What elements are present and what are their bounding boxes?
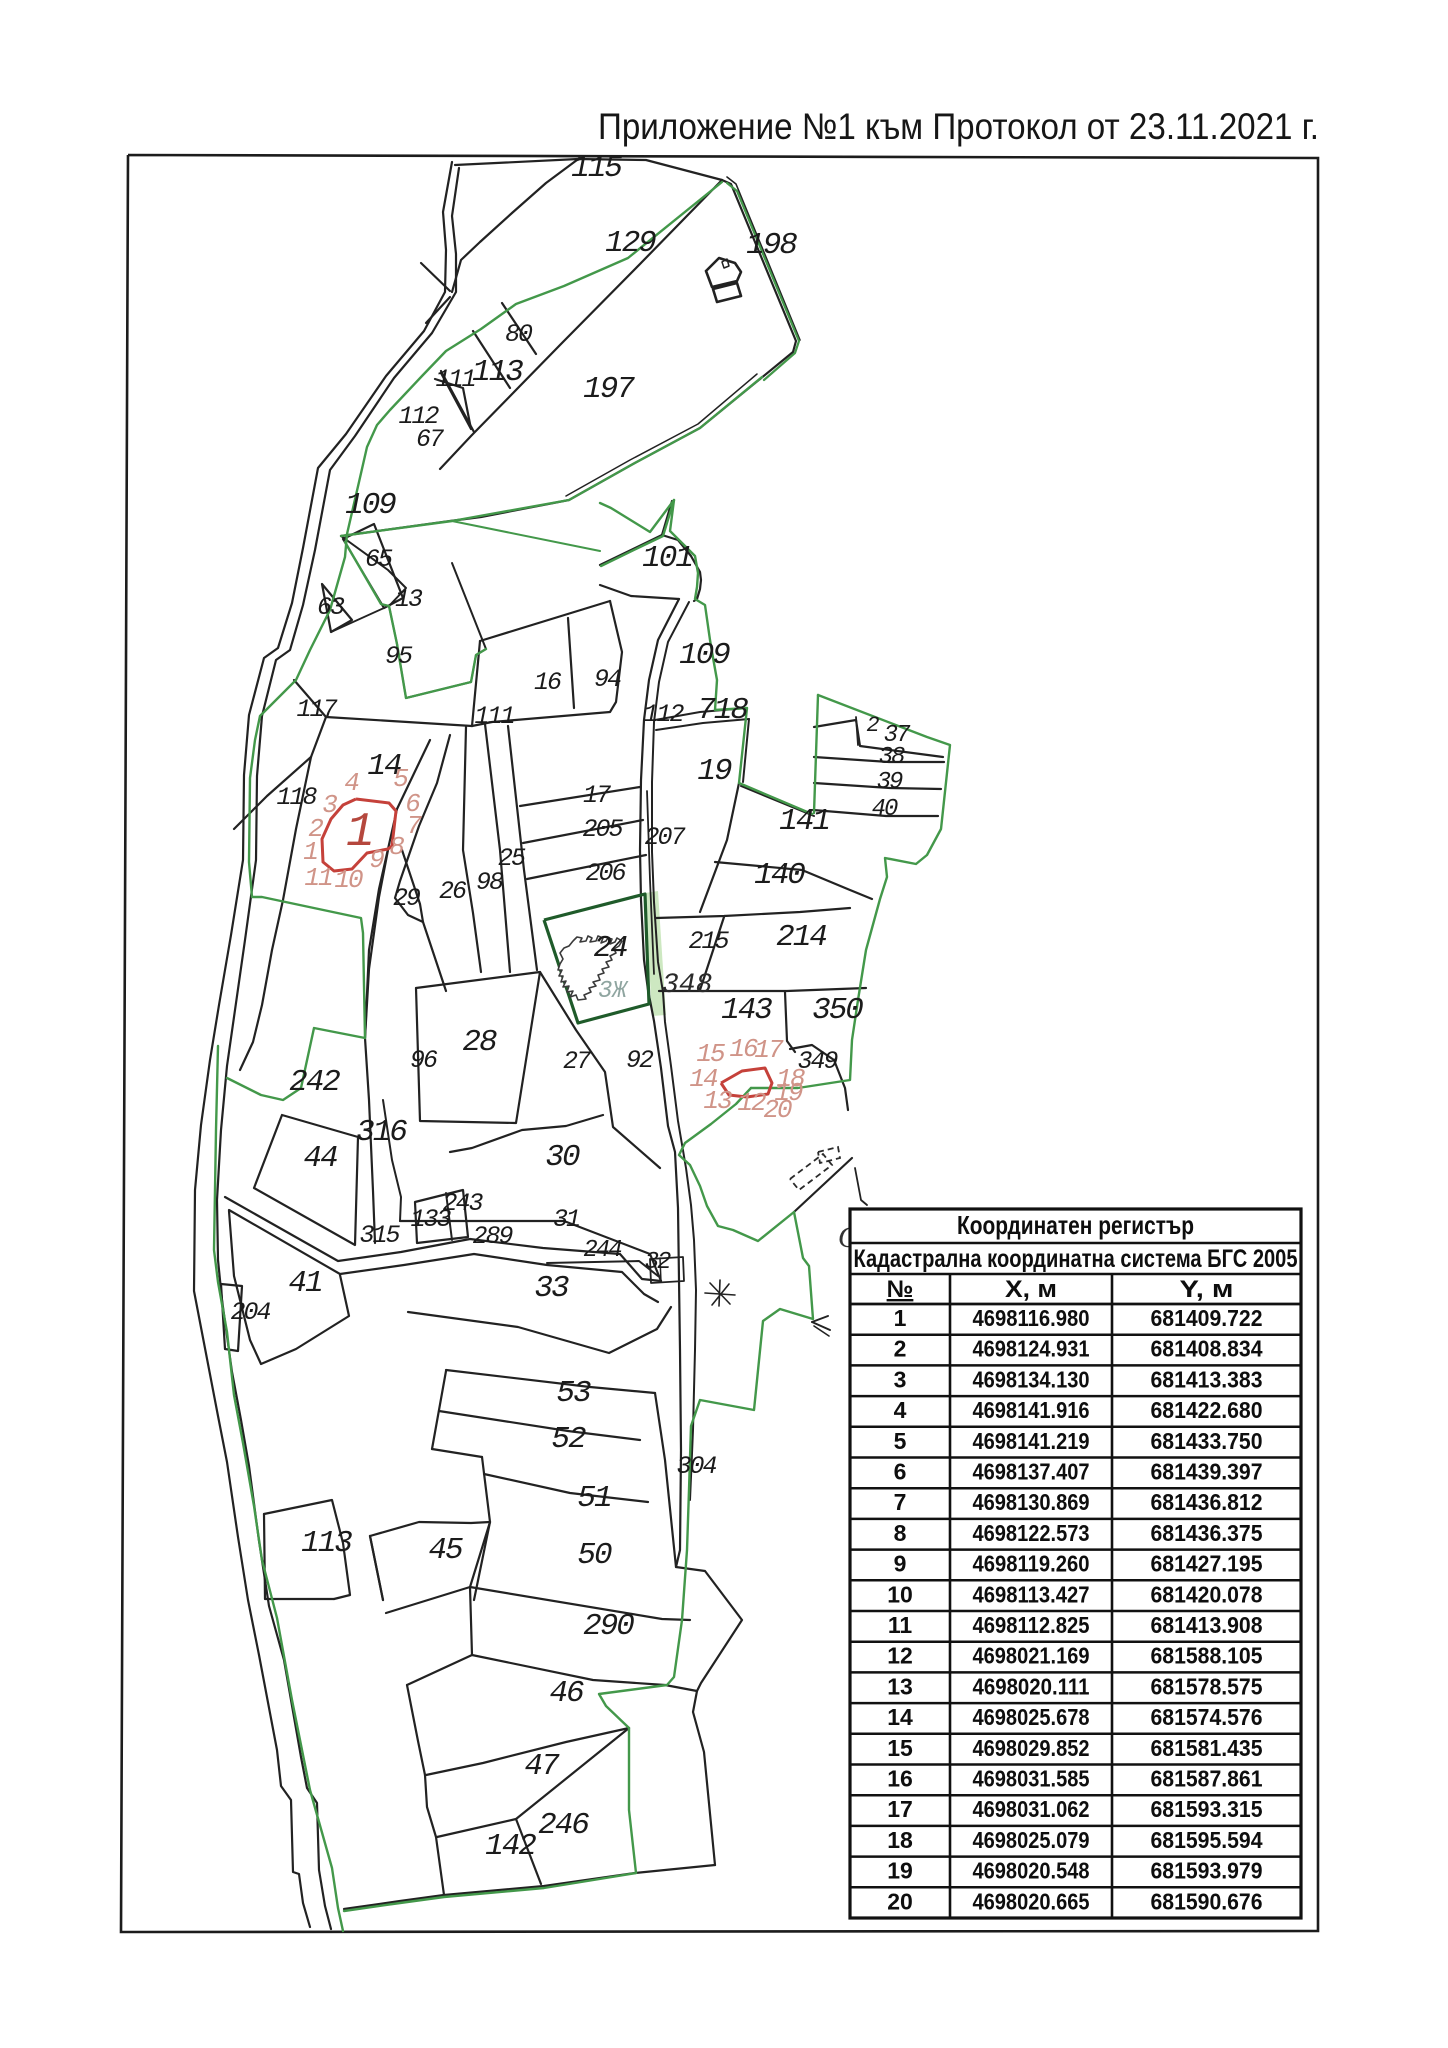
svg-text:4698031.062: 4698031.062 xyxy=(973,1796,1090,1822)
svg-text:348: 348 xyxy=(662,970,712,1001)
svg-text:7: 7 xyxy=(894,1489,907,1515)
svg-text:206: 206 xyxy=(585,859,626,888)
svg-text:13: 13 xyxy=(703,1086,732,1116)
svg-text:5: 5 xyxy=(894,1428,907,1454)
svg-text:681436.812: 681436.812 xyxy=(1151,1489,1263,1515)
svg-text:6: 6 xyxy=(894,1459,907,1485)
svg-text:38: 38 xyxy=(879,744,905,771)
svg-text:17: 17 xyxy=(583,781,611,810)
svg-text:304: 304 xyxy=(676,1452,716,1481)
svg-text:4698122.573: 4698122.573 xyxy=(973,1520,1090,1546)
svg-text:33: 33 xyxy=(534,1271,569,1306)
svg-text:15: 15 xyxy=(887,1735,913,1761)
svg-text:1: 1 xyxy=(894,1305,907,1331)
svg-text:4698031.585: 4698031.585 xyxy=(973,1766,1090,1792)
svg-text:681427.195: 681427.195 xyxy=(1151,1551,1263,1577)
svg-text:Y, м: Y, м xyxy=(1180,1276,1234,1303)
svg-text:16: 16 xyxy=(534,668,562,697)
svg-text:3: 3 xyxy=(322,790,337,820)
svg-text:197: 197 xyxy=(583,372,635,407)
svg-text:205: 205 xyxy=(582,815,623,844)
svg-text:112: 112 xyxy=(643,700,684,729)
svg-text:52: 52 xyxy=(551,1422,586,1457)
svg-text:133: 133 xyxy=(410,1205,451,1234)
svg-text:140: 140 xyxy=(754,858,805,893)
svg-text:94: 94 xyxy=(594,665,621,694)
svg-text:4698134.130: 4698134.130 xyxy=(973,1366,1090,1392)
svg-text:11: 11 xyxy=(888,1612,913,1638)
svg-text:26: 26 xyxy=(439,877,467,906)
svg-text:681590.676: 681590.676 xyxy=(1151,1888,1263,1914)
svg-text:289: 289 xyxy=(472,1222,512,1251)
svg-text:681593.979: 681593.979 xyxy=(1151,1858,1263,1884)
svg-text:4698130.869: 4698130.869 xyxy=(973,1489,1090,1515)
svg-text:46: 46 xyxy=(549,1676,584,1711)
svg-text:4698141.916: 4698141.916 xyxy=(973,1397,1090,1423)
svg-text:681409.722: 681409.722 xyxy=(1151,1305,1263,1331)
svg-text:3: 3 xyxy=(894,1366,907,1392)
svg-text:113: 113 xyxy=(472,355,523,390)
svg-text:129: 129 xyxy=(605,226,656,261)
svg-text:215: 215 xyxy=(688,927,729,956)
svg-text:4698141.219: 4698141.219 xyxy=(973,1428,1090,1454)
svg-text:204: 204 xyxy=(230,1298,270,1327)
svg-text:9: 9 xyxy=(894,1551,907,1577)
svg-text:Координатен регистър: Координатен регистър xyxy=(957,1210,1194,1240)
svg-text:4698025.678: 4698025.678 xyxy=(973,1704,1090,1730)
svg-text:681595.594: 681595.594 xyxy=(1151,1827,1263,1853)
svg-text:95: 95 xyxy=(385,642,413,671)
svg-text:Х, м: Х, м xyxy=(1005,1276,1057,1303)
svg-text:681413.383: 681413.383 xyxy=(1151,1366,1263,1392)
svg-text:681422.680: 681422.680 xyxy=(1151,1397,1263,1423)
svg-text:12: 12 xyxy=(737,1088,766,1118)
svg-text:25: 25 xyxy=(498,844,526,873)
svg-text:718: 718 xyxy=(697,693,748,728)
svg-text:290: 290 xyxy=(583,1609,634,1644)
svg-text:141: 141 xyxy=(779,804,829,839)
svg-text:67: 67 xyxy=(416,425,444,454)
svg-text:13: 13 xyxy=(887,1673,913,1699)
svg-text:117: 117 xyxy=(296,695,337,724)
svg-text:30: 30 xyxy=(545,1140,580,1175)
svg-text:4698124.931: 4698124.931 xyxy=(973,1336,1090,1362)
svg-text:681578.575: 681578.575 xyxy=(1151,1673,1263,1699)
svg-text:24: 24 xyxy=(593,931,627,966)
svg-text:111: 111 xyxy=(435,365,474,394)
svg-text:681439.397: 681439.397 xyxy=(1151,1459,1263,1485)
svg-text:Кадастрална координатна систем: Кадастрална координатна система БГС 2005 xyxy=(854,1245,1298,1273)
svg-text:16: 16 xyxy=(887,1766,913,1792)
svg-text:118: 118 xyxy=(276,783,317,812)
svg-text:14: 14 xyxy=(887,1704,913,1730)
svg-text:115: 115 xyxy=(571,151,622,186)
svg-text:681581.435: 681581.435 xyxy=(1151,1735,1263,1761)
svg-text:4698020.111: 4698020.111 xyxy=(973,1673,1090,1699)
svg-text:4698137.407: 4698137.407 xyxy=(973,1459,1090,1485)
svg-text:681433.750: 681433.750 xyxy=(1151,1428,1263,1454)
svg-text:8: 8 xyxy=(389,832,404,862)
svg-text:98: 98 xyxy=(476,868,504,897)
svg-text:681436.375: 681436.375 xyxy=(1151,1520,1263,1546)
svg-text:92: 92 xyxy=(626,1046,654,1075)
svg-text:20: 20 xyxy=(887,1888,913,1914)
svg-text:101: 101 xyxy=(642,541,692,576)
svg-text:242: 242 xyxy=(289,1065,340,1100)
svg-text:4698020.665: 4698020.665 xyxy=(973,1888,1090,1914)
svg-text:51: 51 xyxy=(577,1481,610,1516)
svg-text:32: 32 xyxy=(645,1249,671,1276)
svg-text:315: 315 xyxy=(359,1221,400,1250)
svg-text:4698020.548: 4698020.548 xyxy=(973,1858,1090,1884)
svg-text:4698021.169: 4698021.169 xyxy=(973,1643,1090,1669)
svg-text:50: 50 xyxy=(577,1538,612,1573)
svg-text:681588.105: 681588.105 xyxy=(1151,1643,1263,1669)
svg-text:246: 246 xyxy=(538,1808,589,1843)
svg-text:207: 207 xyxy=(644,823,685,852)
svg-text:31: 31 xyxy=(553,1205,579,1234)
svg-text:4698113.427: 4698113.427 xyxy=(973,1581,1090,1607)
svg-text:10: 10 xyxy=(334,865,363,895)
svg-text:41: 41 xyxy=(288,1266,321,1301)
svg-text:109: 109 xyxy=(679,638,730,673)
svg-text:80: 80 xyxy=(505,320,533,349)
svg-text:20: 20 xyxy=(763,1095,792,1125)
svg-text:4698025.079: 4698025.079 xyxy=(973,1827,1090,1853)
svg-text:63: 63 xyxy=(317,593,345,622)
svg-text:198: 198 xyxy=(746,228,797,263)
svg-text:214: 214 xyxy=(776,920,826,955)
svg-text:2: 2 xyxy=(866,713,879,738)
svg-text:27: 27 xyxy=(563,1047,591,1076)
svg-text:244: 244 xyxy=(583,1237,622,1264)
svg-text:109: 109 xyxy=(345,488,396,523)
svg-text:4: 4 xyxy=(344,768,359,798)
svg-text:19: 19 xyxy=(697,754,732,789)
svg-text:316: 316 xyxy=(356,1115,407,1150)
svg-text:65: 65 xyxy=(365,545,393,574)
svg-text:11: 11 xyxy=(304,863,332,893)
svg-text:681574.576: 681574.576 xyxy=(1151,1704,1263,1730)
svg-text:45: 45 xyxy=(428,1533,463,1568)
svg-text:10: 10 xyxy=(887,1581,913,1607)
svg-text:13: 13 xyxy=(395,585,423,614)
svg-text:4698029.852: 4698029.852 xyxy=(973,1735,1090,1761)
svg-text:9: 9 xyxy=(369,845,384,875)
svg-text:12: 12 xyxy=(887,1643,913,1669)
svg-text:53: 53 xyxy=(556,1376,591,1411)
svg-text:7: 7 xyxy=(406,811,422,841)
svg-text:96: 96 xyxy=(410,1046,438,1075)
svg-text:8: 8 xyxy=(894,1520,907,1546)
svg-text:4: 4 xyxy=(894,1397,907,1423)
svg-text:4698112.825: 4698112.825 xyxy=(973,1612,1090,1638)
svg-text:681587.861: 681587.861 xyxy=(1151,1766,1263,1792)
svg-text:4698119.260: 4698119.260 xyxy=(973,1551,1090,1577)
svg-text:17: 17 xyxy=(754,1035,784,1065)
svg-text:2: 2 xyxy=(894,1336,907,1362)
svg-text:44: 44 xyxy=(303,1141,337,1176)
svg-text:681408.834: 681408.834 xyxy=(1151,1336,1263,1362)
svg-text:№: № xyxy=(887,1276,914,1303)
svg-text:681420.078: 681420.078 xyxy=(1151,1581,1263,1607)
svg-text:29: 29 xyxy=(393,884,420,913)
svg-text:28: 28 xyxy=(462,1025,497,1060)
svg-text:681413.908: 681413.908 xyxy=(1151,1612,1263,1638)
svg-text:19: 19 xyxy=(887,1858,913,1884)
svg-text:Приложение №1 към Протокол от: Приложение №1 към Протокол от 23.11.2021… xyxy=(598,106,1319,147)
svg-text:4698116.980: 4698116.980 xyxy=(973,1305,1090,1331)
svg-text:18: 18 xyxy=(887,1827,913,1853)
svg-text:142: 142 xyxy=(485,1829,536,1864)
svg-text:47: 47 xyxy=(524,1749,560,1784)
svg-text:40: 40 xyxy=(872,796,898,823)
svg-text:111: 111 xyxy=(474,702,513,731)
svg-text:350: 350 xyxy=(812,993,863,1028)
svg-text:39: 39 xyxy=(877,769,903,796)
svg-text:113: 113 xyxy=(301,1526,352,1561)
svg-text:681593.315: 681593.315 xyxy=(1151,1796,1263,1822)
svg-text:17: 17 xyxy=(887,1796,913,1822)
svg-text:3Ж: 3Ж xyxy=(598,978,629,1005)
svg-text:143: 143 xyxy=(721,993,772,1028)
